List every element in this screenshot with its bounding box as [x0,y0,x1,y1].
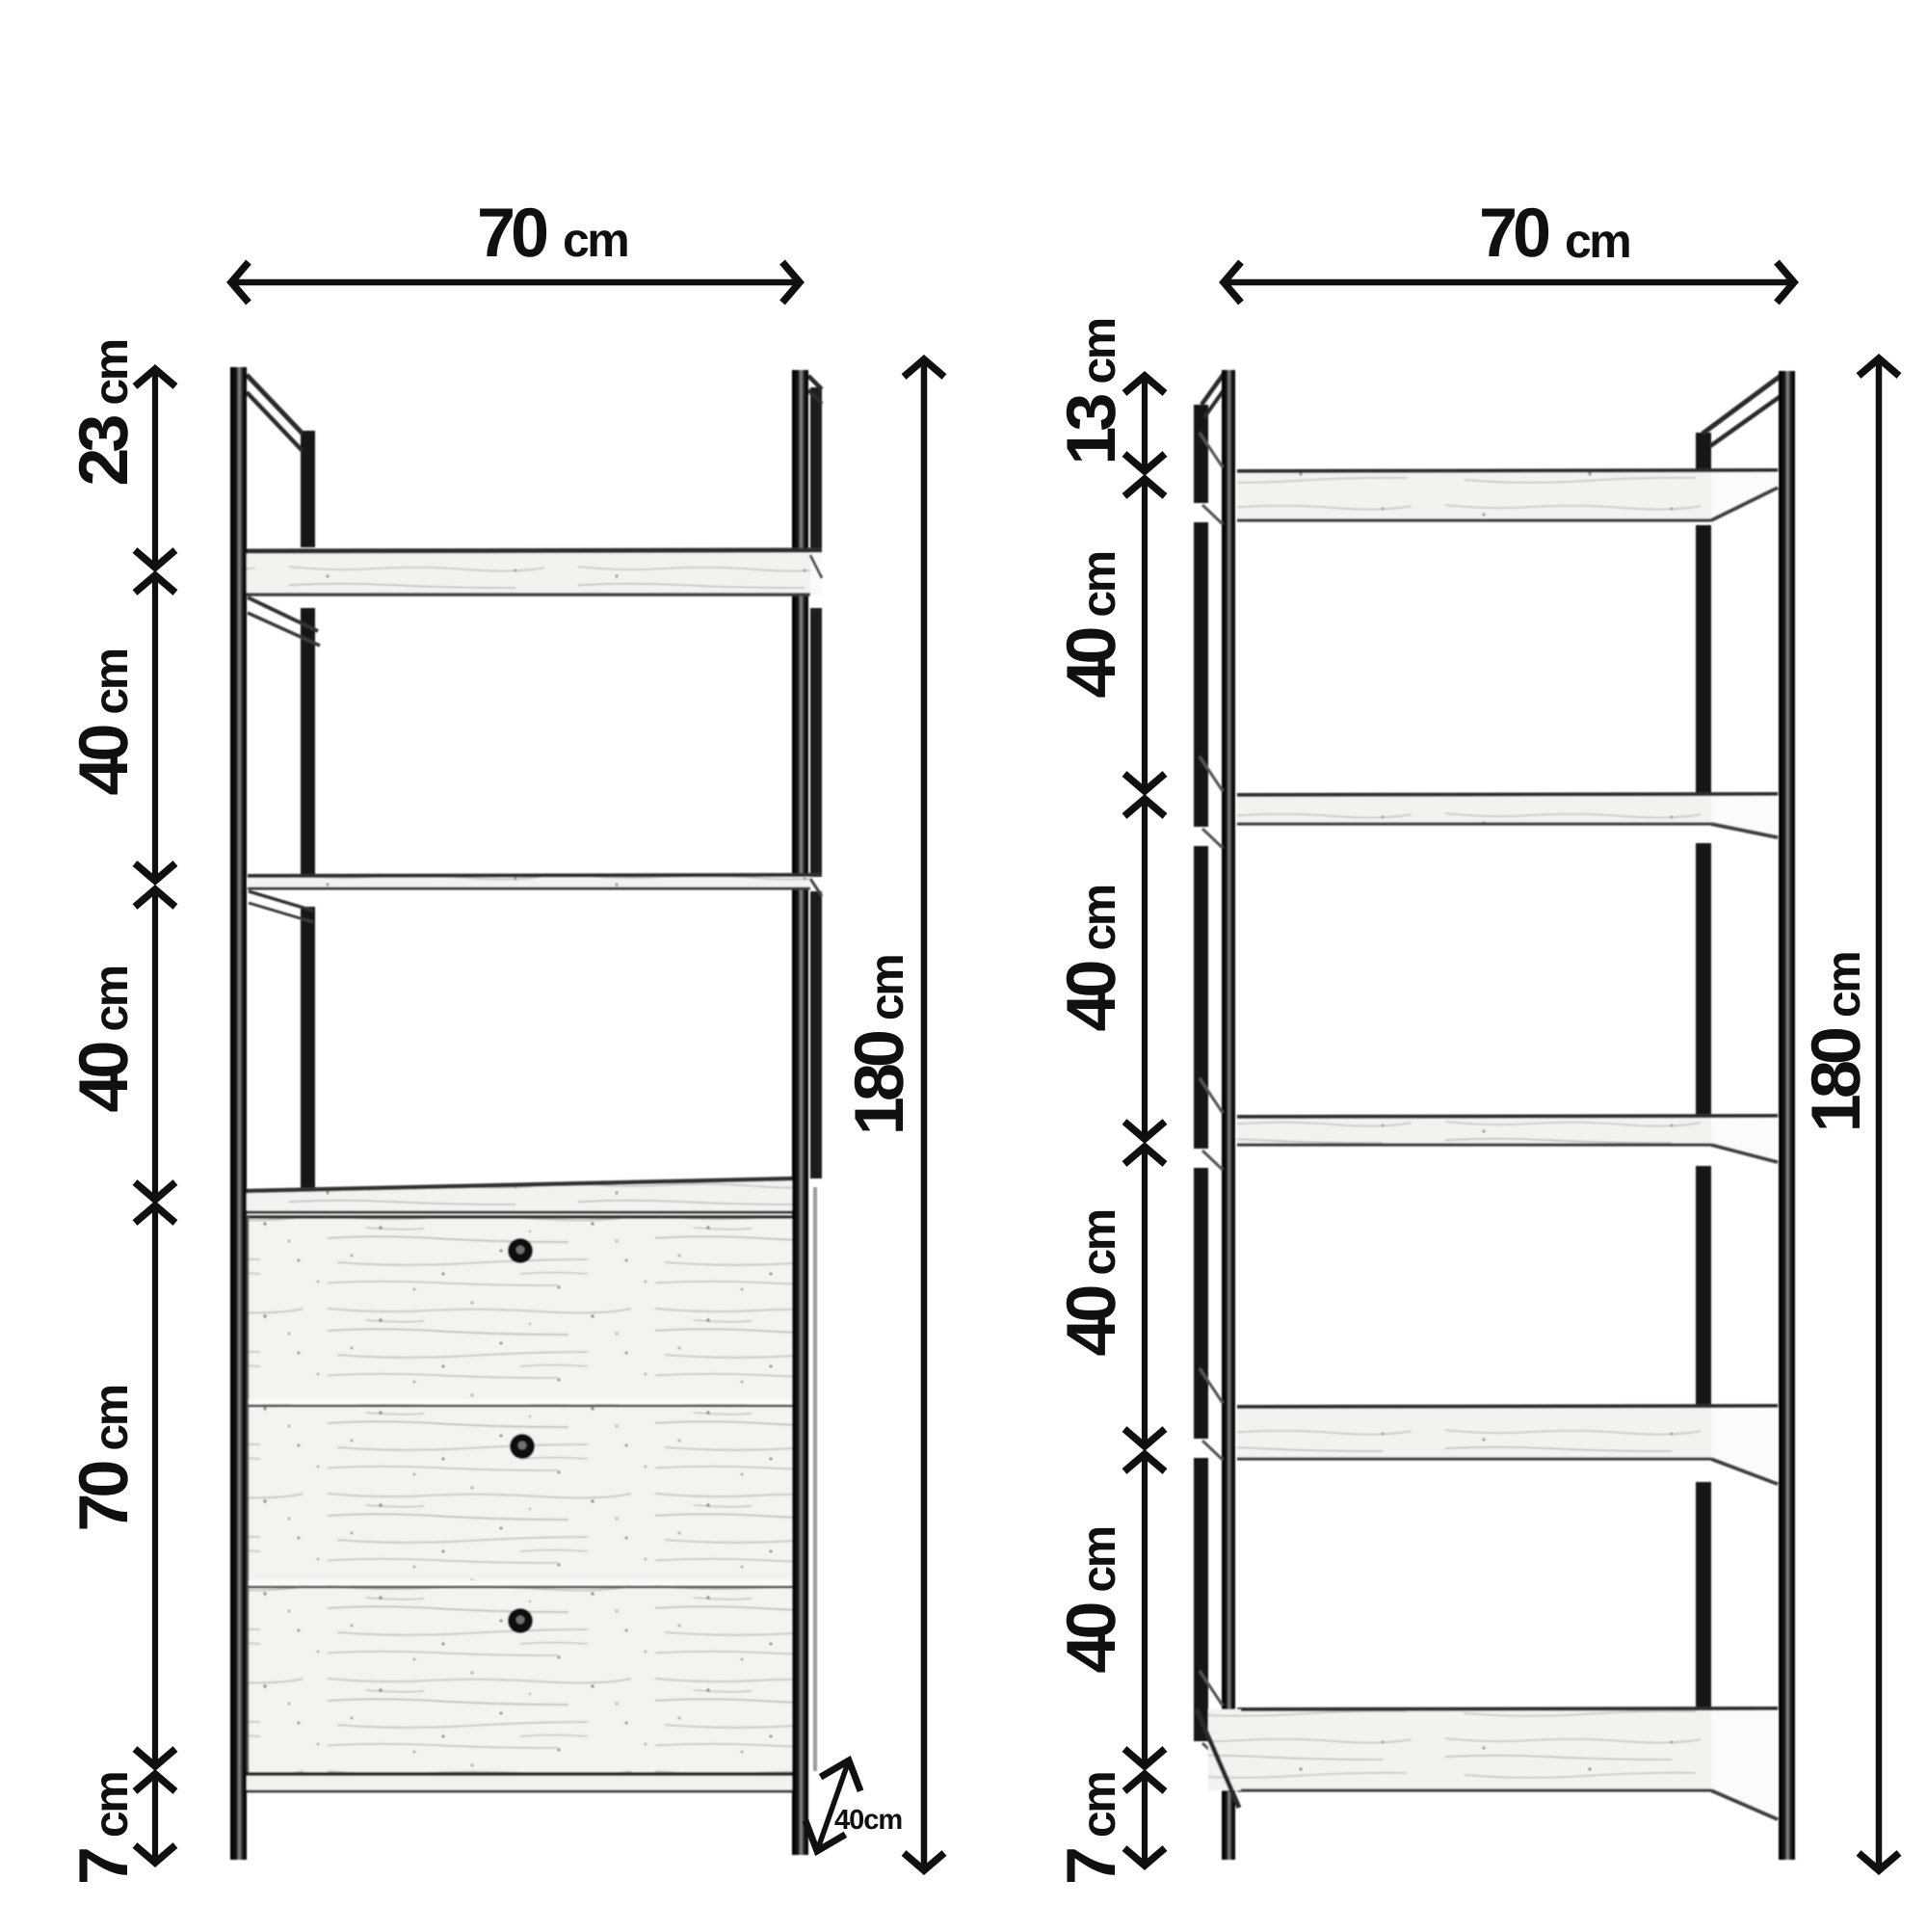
svg-text:70: 70 [1479,195,1549,272]
svg-text:cm: cm [563,213,627,267]
svg-text:40cm: 40cm [834,1805,902,1836]
svg-text:cm: cm [1565,214,1629,268]
svg-text:70: 70 [477,195,547,272]
